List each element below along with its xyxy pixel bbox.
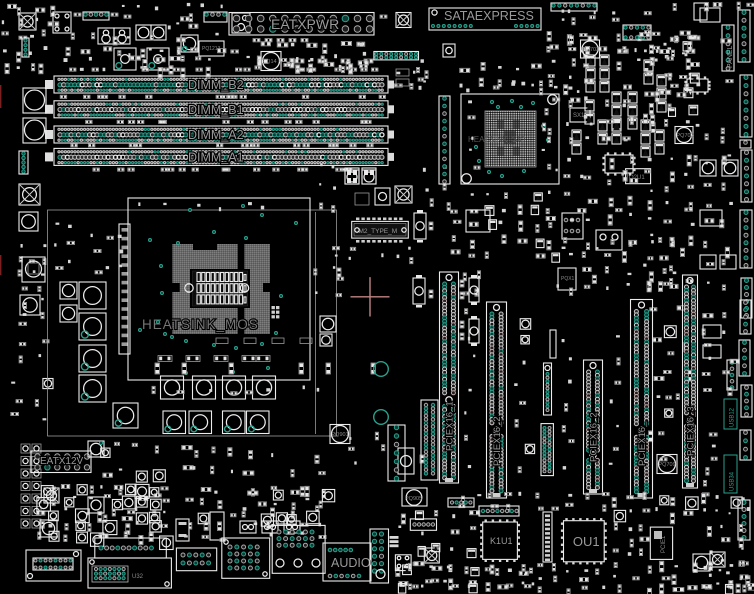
svg-text:HEATSINK_MOS: HEATSINK_MOS	[142, 317, 259, 332]
svg-text:PQ901: PQ901	[332, 432, 349, 438]
svg-text:U32: U32	[132, 574, 144, 580]
svg-text:DIMM_A2: DIMM_A2	[188, 128, 244, 142]
svg-text:DIMM_A1: DIMM_A1	[188, 151, 244, 165]
svg-text:PCIEX16_: PCIEX16_	[637, 421, 648, 466]
svg-text:PANEL: PANEL	[727, 45, 734, 68]
svg-text:AUDIO: AUDIO	[331, 556, 371, 570]
svg-text:OU1: OU1	[573, 534, 600, 549]
svg-text:DIMM_B1: DIMM_B1	[188, 103, 244, 117]
svg-text:SATAEXPRESS: SATAEXPRESS	[444, 9, 534, 23]
svg-text:EATX12V: EATX12V	[40, 456, 83, 467]
svg-text:PQ905: PQ905	[405, 496, 422, 502]
svg-text:PCIEX16_1: PCIEX16_1	[445, 401, 456, 451]
svg-text:PCIEX16_2: PCIEX16_2	[492, 416, 503, 466]
svg-text:PQX1: PQX1	[561, 276, 575, 282]
svg-text:DIMM_B2: DIMM_B2	[188, 78, 244, 92]
svg-text:HEATSINK_SIO: HEATSINK_SIO	[468, 135, 526, 144]
svg-text:EATXPWR: EATXPWR	[271, 16, 339, 32]
svg-text:SX1: SX1	[573, 113, 585, 119]
svg-text:PCIEX16_3: PCIEX16_3	[686, 406, 697, 456]
svg-text:M2_TYPE_M: M2_TYPE_M	[359, 228, 398, 235]
svg-text:K1U1: K1U1	[490, 536, 513, 546]
svg-text:USB12: USB12	[730, 407, 736, 427]
svg-text:PQ709: PQ709	[659, 462, 676, 468]
svg-text:PQ703: PQ703	[582, 47, 599, 53]
svg-text:PQ702: PQ702	[677, 133, 694, 139]
svg-text:USB34: USB34	[730, 471, 736, 491]
svg-text:PCIEX16_2: PCIEX16_2	[589, 412, 600, 462]
